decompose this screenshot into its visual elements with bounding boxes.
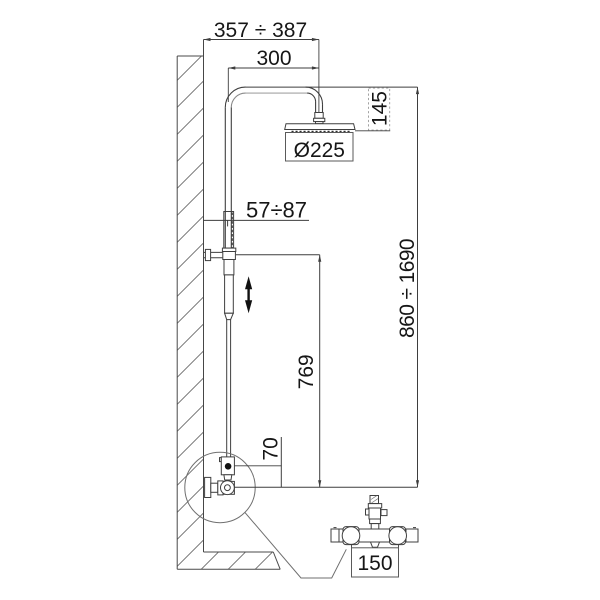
svg-text:150: 150 bbox=[357, 552, 392, 575]
svg-text:Ø225: Ø225 bbox=[294, 139, 345, 162]
svg-text:145: 145 bbox=[368, 91, 391, 126]
svg-text:357 ÷ 387: 357 ÷ 387 bbox=[214, 19, 307, 42]
svg-text:300: 300 bbox=[256, 47, 291, 70]
svg-text:57÷87: 57÷87 bbox=[246, 197, 307, 222]
svg-text:860 ÷ 1690: 860 ÷ 1690 bbox=[396, 239, 419, 338]
svg-text:769: 769 bbox=[295, 354, 318, 389]
svg-text:70: 70 bbox=[260, 437, 283, 460]
